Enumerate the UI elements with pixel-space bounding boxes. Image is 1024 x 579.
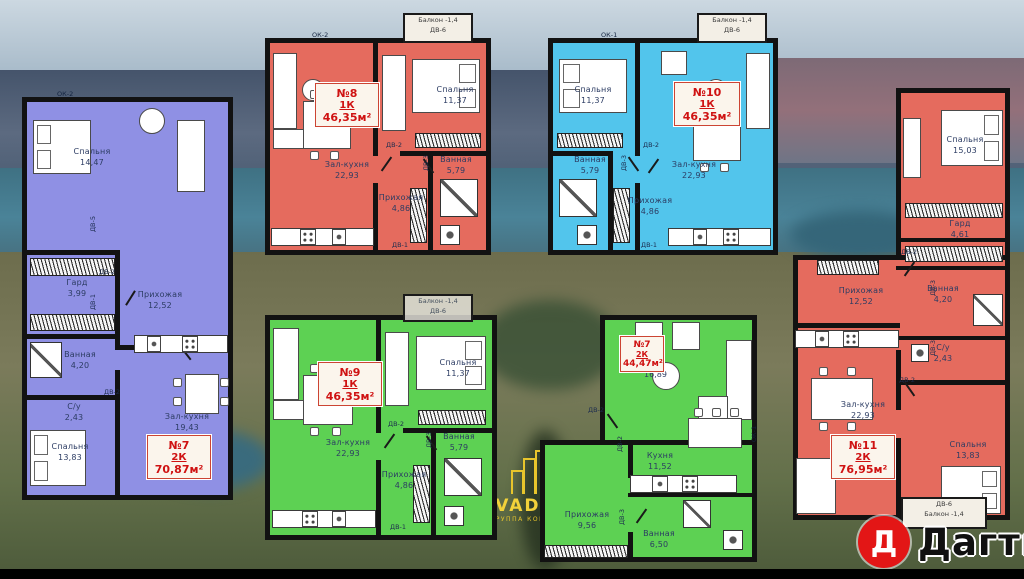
- room-label: Спальня13,83: [37, 442, 103, 464]
- room-label: С/у2,43: [910, 343, 976, 365]
- room-label: Ванная5,79: [426, 432, 492, 454]
- chair-icon: [712, 408, 721, 417]
- stove-icon: [843, 331, 859, 347]
- door-label: ДВ-2: [386, 141, 402, 149]
- door-label: ДВ-1: [89, 294, 97, 310]
- room-label: Ванная5,79: [423, 155, 489, 177]
- washing-machine-icon: [723, 530, 743, 550]
- door-label: ДВ-3: [620, 155, 628, 171]
- chair-icon: [220, 397, 229, 406]
- door-label: ДВ-3: [618, 509, 626, 525]
- chair-icon: [173, 378, 182, 387]
- shower-icon: [440, 179, 478, 217]
- closet-hatch-icon: [905, 246, 1003, 262]
- room-label: Гард4,61: [927, 219, 993, 241]
- door-label: ДВ-2: [616, 436, 624, 452]
- logo-name: Дагти: [918, 521, 1024, 564]
- sofa-icon: [273, 53, 297, 129]
- room-label: Прихожая4,86: [371, 470, 437, 492]
- kitchen-counter-icon: [271, 228, 374, 246]
- closet-hatch-icon: [905, 203, 1003, 218]
- shower-icon: [683, 500, 711, 528]
- closet-hatch-icon: [817, 260, 879, 275]
- floor-plan-11-red[interactable]: Спальня15,03 Гард4,61 Ванная4,20 С/у2,43…: [793, 88, 1010, 520]
- door-label: ДВ-2: [388, 420, 404, 428]
- closet-hatch-icon: [30, 314, 115, 331]
- room-label: С/у2,43: [41, 402, 107, 424]
- apartment-badge: №10 1К 46,35м²: [674, 82, 740, 126]
- closet-hatch-icon: [418, 410, 486, 425]
- dining-table-icon: [185, 374, 219, 414]
- sofa-icon: [746, 53, 770, 129]
- room-label: Ванная5,79: [557, 155, 623, 177]
- door-label: ДВ-3: [929, 340, 937, 356]
- room-label: Спальня13,83: [935, 440, 1001, 462]
- chair-icon: [730, 408, 739, 417]
- door-label: ДВ-3: [425, 432, 433, 448]
- door-label: ДВ-2: [99, 268, 115, 276]
- closet-hatch-icon: [557, 133, 623, 148]
- dining-table-icon: [688, 418, 742, 448]
- shower-icon: [559, 179, 597, 217]
- chair-icon: [332, 427, 341, 436]
- sink-icon: [147, 336, 161, 352]
- room-label: Ванная6,50: [626, 529, 692, 551]
- window-label: ОК-1: [750, 426, 758, 442]
- room-label: Спальня11,37: [560, 85, 626, 107]
- floor-plan-9-green[interactable]: Балкон -1,4 ДВ-6 Спальня11,37 Зал-кухня2…: [265, 315, 497, 540]
- chair-icon: [819, 367, 828, 376]
- room-label: Прихожая12,52: [127, 290, 193, 312]
- apartment-badge: №8 1К 46,35м²: [315, 83, 379, 127]
- armchair-icon: [661, 51, 687, 75]
- room-label: Прихожая12,52: [828, 286, 894, 308]
- room-label: Зал-кухня22,93: [830, 400, 896, 422]
- door-label: ДВ-3: [929, 280, 937, 296]
- room-label: Зал-кухня22,93: [314, 160, 380, 182]
- balcony: Балкон -1,4 ДВ-6: [403, 13, 473, 43]
- room-label: Кухня11,52: [627, 451, 693, 473]
- room-label: Прихожая9,56: [554, 510, 620, 532]
- floor-plan-10-blue[interactable]: ОК-1 Балкон -1,4 ДВ-6 Спальня11,37 Зал-к…: [548, 38, 778, 255]
- chair-icon: [310, 151, 319, 160]
- wardrobe-icon: [385, 332, 409, 406]
- door-label: ДВ-2: [901, 248, 917, 256]
- sink-icon: [693, 229, 707, 245]
- sink-icon: [815, 331, 829, 347]
- door-label: ДВ-2: [899, 376, 915, 384]
- door-label: ДВ-2: [104, 388, 120, 396]
- room-label: Прихожая4,86: [368, 193, 434, 215]
- round-chair-icon: [139, 108, 165, 134]
- door-label: ДВ-1: [392, 241, 408, 249]
- chair-icon: [847, 367, 856, 376]
- apartment-badge: №11 2К 76,95м²: [831, 435, 895, 479]
- closet-hatch-icon: [415, 133, 481, 148]
- door-label: ДВ-2: [588, 406, 604, 414]
- stove-icon: [302, 511, 318, 527]
- window-label: ОК-2: [312, 31, 328, 39]
- sink-icon: [332, 229, 346, 245]
- window-label: ОК-1: [601, 31, 617, 39]
- floor-plan-7-green[interactable]: 16,89 Кухня11,52 Прихожая9,56 Ванная6,50…: [540, 310, 760, 562]
- room-label: Спальня15,03: [932, 135, 998, 157]
- chair-icon: [694, 408, 703, 417]
- stove-icon: [682, 476, 698, 492]
- brand-logo[interactable]: Д Дагти: [858, 516, 1024, 568]
- window-label: ОК-2: [57, 90, 73, 98]
- room-label: Спальня14,47: [59, 147, 125, 169]
- bottom-bar: [0, 569, 1024, 579]
- door-label: ДВ-2: [643, 141, 659, 149]
- room-label: Спальня11,37: [422, 85, 488, 107]
- chair-icon: [330, 151, 339, 160]
- room-label: Спальня11,37: [425, 358, 491, 380]
- balcony: Балкон -1,4 ДВ-6: [403, 294, 473, 322]
- chair-icon: [847, 422, 856, 431]
- door-label: ДВ-5: [89, 216, 97, 232]
- logo-letter-icon: Д: [858, 516, 910, 568]
- shower-icon: [444, 458, 482, 496]
- sink-icon: [332, 511, 346, 527]
- stove-icon: [723, 229, 739, 245]
- stove-icon: [182, 336, 198, 352]
- floor-plan-7-violet[interactable]: ОК-2 Спальня14,47 Гард3,99 Ванная4,20 Пр…: [22, 97, 233, 500]
- door-label: ДВ-1: [390, 523, 406, 531]
- kitchen-counter-icon: [272, 510, 376, 528]
- apartment-badge: №9 1К 46,35м²: [318, 362, 382, 406]
- washing-machine-icon: [440, 225, 460, 245]
- balcony: Балкон -1,4 ДВ-6: [697, 13, 767, 43]
- sofa-icon: [273, 328, 299, 400]
- stove-icon: [300, 229, 316, 245]
- room-label: Ванная4,20: [47, 350, 113, 372]
- chair-icon: [220, 378, 229, 387]
- armchair-icon: [672, 322, 700, 350]
- kitchen-counter-icon: [668, 228, 771, 246]
- chair-icon: [310, 427, 319, 436]
- chair-icon: [819, 422, 828, 431]
- shower-icon: [973, 294, 1003, 326]
- room-label: Зал-кухня19,43: [154, 412, 220, 434]
- door-label: ДВ-3: [422, 155, 430, 171]
- room-label: Гард3,99: [44, 278, 110, 300]
- room-label: Зал-кухня22,93: [315, 438, 381, 460]
- chair-icon: [173, 397, 182, 406]
- wardrobe-icon: [382, 55, 406, 131]
- washing-machine-icon: [444, 506, 464, 526]
- sink-icon: [652, 476, 668, 492]
- room-label: Ванная4,20: [910, 284, 976, 306]
- door-label: ДВ-1: [641, 241, 657, 249]
- page: VADRA ГРУППА КОМПАНИЙ ОК-2 Спальня14: [0, 0, 1024, 579]
- apartment-badge: №7 2К 44,47м²: [620, 336, 664, 372]
- wardrobe-icon: [903, 118, 921, 178]
- sofa-icon: [796, 458, 836, 514]
- closet-hatch-icon: [544, 545, 628, 558]
- apartment-badge: №7 2К 70,87м²: [147, 435, 211, 479]
- washing-machine-icon: [577, 225, 597, 245]
- room-label: Зал-кухня22,93: [661, 160, 727, 182]
- wardrobe-icon: [177, 120, 205, 192]
- room-label: Прихожая4,86: [617, 196, 683, 218]
- floor-plan-8-red[interactable]: ОК-2 Балкон -1,4 ДВ-6 Спальня11,37 Зал-к: [265, 38, 491, 255]
